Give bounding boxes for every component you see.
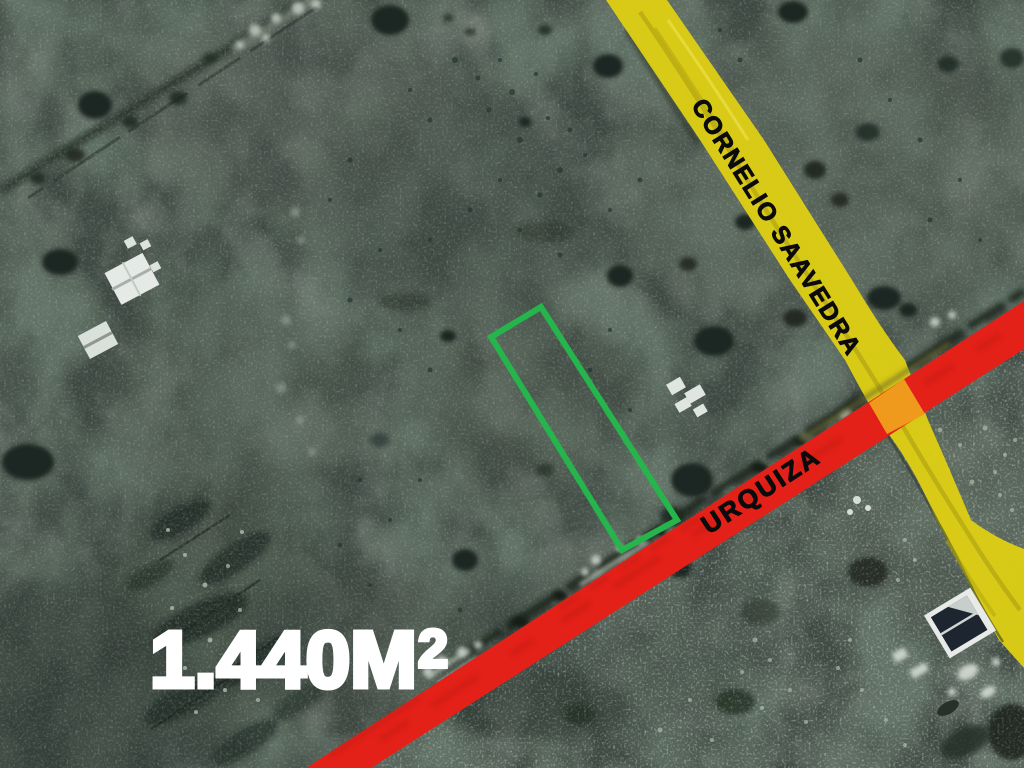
svg-text:1.440M: 1.440M (150, 615, 417, 704)
svg-text:2: 2 (418, 619, 448, 679)
